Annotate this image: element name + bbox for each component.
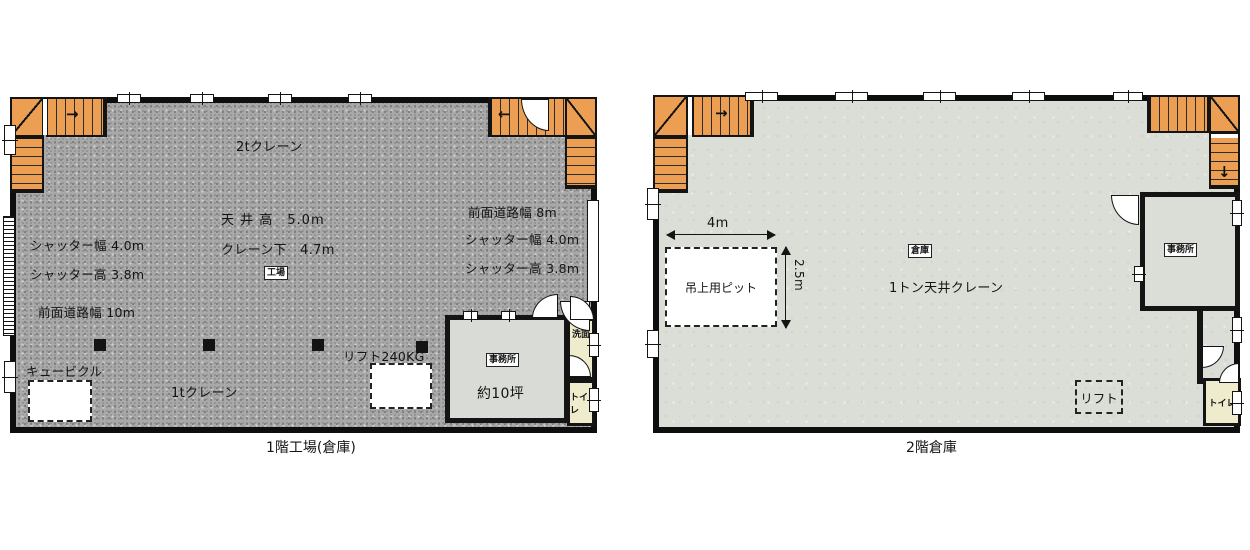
pit-width-arrow [667,234,775,235]
window [1232,391,1242,415]
window [1232,317,1242,343]
column [203,339,215,351]
stair-break [1211,134,1238,138]
window [647,330,659,358]
door-arc [532,294,558,318]
office-area-label: 約10坪 [477,383,524,403]
shutter-height-right-label: シャッター高 3.8m [465,258,579,277]
stair-landing [565,97,597,137]
crane-2t-label: 2tクレーン [236,136,303,155]
window [463,311,478,320]
shutter-height-left-label: シャッター高 3.8m [30,264,144,283]
column [312,339,324,351]
office-room [445,315,569,423]
shutter-hatch [3,216,15,336]
arrow-right-icon: → [66,107,79,122]
window [4,125,16,155]
factory-tag-chip: 工場 [264,266,288,280]
window [1113,92,1143,101]
front-road-right-label: 前面道路幅 8m [468,202,557,221]
staircase-top-right [1147,95,1209,133]
lift-box: リフト [1075,380,1123,414]
window [4,361,16,393]
cubicle-label: キュービクル [26,361,102,380]
front-road-left-label: 前面道路幅 10m [38,302,135,321]
warehouse-tag-chip: 倉庫 [908,244,932,258]
door-arc [1202,346,1224,368]
window [190,94,214,103]
stair-landing [653,95,688,137]
window [268,94,292,103]
shutter-width-left-label: シャッター幅 4.0m [30,235,144,254]
lift-label: リフト [1080,388,1118,407]
office-label-chip: 事務所 [486,353,519,367]
crane-label: 1トン天井クレーン [889,277,1003,296]
pit-width-label: 4m [707,216,729,231]
floor1-plan: → ← 事務所 約10坪 洗面 トイレ [10,97,597,433]
window [1232,200,1242,226]
arrow-down-icon: ↓ [1218,165,1231,180]
floor1-caption: 1階工場(倉庫) [266,437,356,457]
cubicle-box [28,380,92,422]
office-label-chip: 事務所 [1164,243,1197,257]
stair-break [688,97,692,135]
window [117,94,141,103]
window [923,92,956,101]
pit-depth-arrow [785,247,786,328]
door-arc [1219,363,1239,383]
window [501,311,516,320]
lift-label: リフト240KG [343,346,425,365]
window [589,333,599,357]
shutter-width-right-label: シャッター幅 4.0m [465,229,579,248]
window [589,388,599,412]
window [348,94,372,103]
window [647,188,659,220]
hoisting-pit-label: 吊上用ピット [685,279,757,296]
window [745,92,778,101]
hoisting-pit-box: 吊上用ピット [665,247,777,327]
staircase-top-right-run [565,137,597,189]
window [1012,92,1045,101]
floor2-plan: → ↓ 吊上用ピット 4m 2.5m 倉庫 1トン天井クレーン 事務所 [653,95,1240,433]
ceiling-height-label: 天 井 高 5.0m [221,209,325,228]
crane-1t-label: 1tクレーン [171,382,238,401]
staircase-top-left-run [653,137,688,193]
door-arc [1111,195,1139,225]
under-crane-label: クレーン下 4.7m [221,239,335,258]
window [835,92,868,101]
pit-depth-label: 2.5m [792,259,806,291]
stair-break [43,99,47,135]
stair-landing [1209,95,1240,133]
floor2-caption: 2階倉庫 [906,437,957,457]
lift-box [370,363,432,409]
arrow-left-icon: ← [498,107,511,122]
floor-plan-page: → ← 事務所 約10坪 洗面 トイレ [0,0,1250,550]
window [1134,266,1144,282]
column [94,339,106,351]
shutter-opening [587,200,599,302]
arrow-right-icon: → [715,106,728,121]
